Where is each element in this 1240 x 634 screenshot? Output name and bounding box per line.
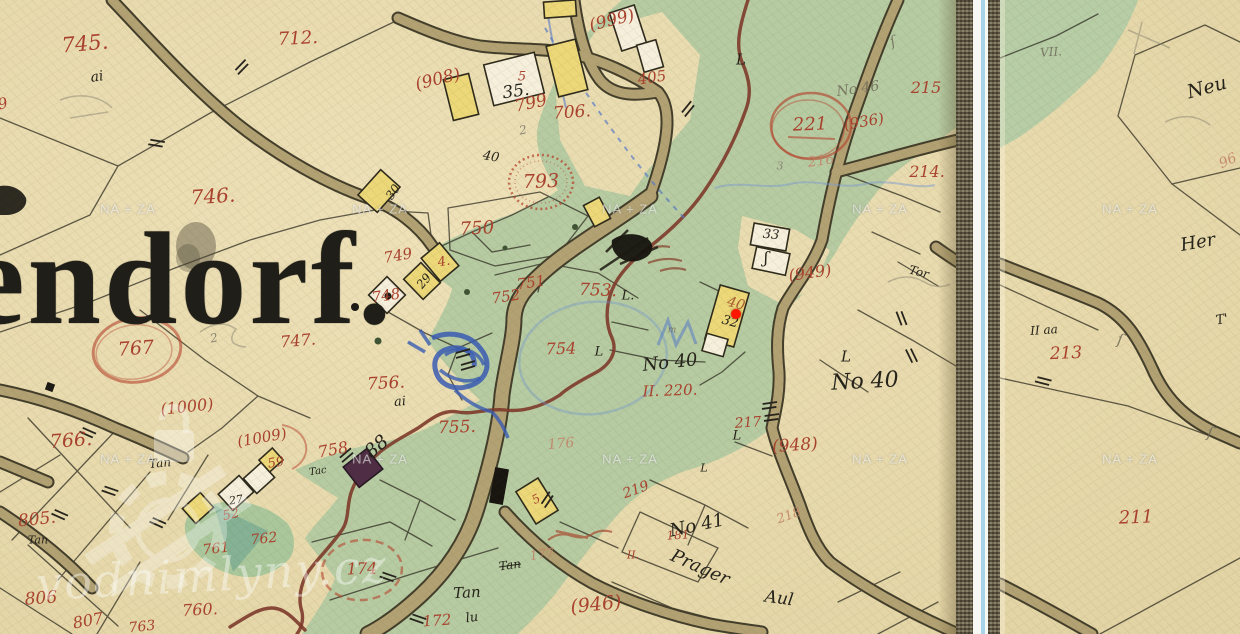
right-sheet-canvas-edge (988, 0, 1000, 634)
right-sheet-inner-edge (1000, 0, 1005, 634)
sheet-gap (973, 0, 981, 634)
map-viewport[interactable]: endorf. 745.712.(908)(999)405799706.215(… (0, 0, 1240, 634)
sheet-edge-shadow (938, 0, 956, 634)
left-sheet-canvas-edge (956, 0, 973, 634)
mill-marker[interactable] (731, 309, 741, 319)
village-name-text: endorf. (0, 213, 394, 345)
